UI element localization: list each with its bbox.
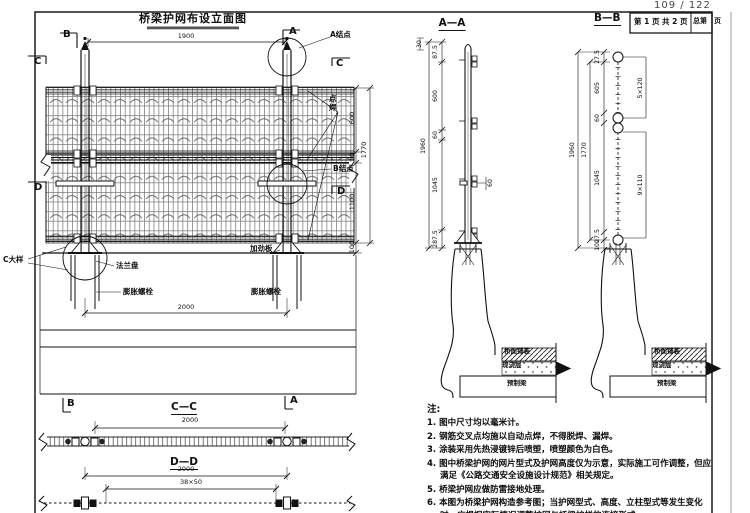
dim-bb-1770: 1770 xyxy=(582,142,588,158)
dim-dd-span: 2000 xyxy=(178,466,195,473)
marker-a-top: A xyxy=(289,27,297,37)
label-stiffener: 加劲板 xyxy=(250,245,273,253)
drawing-title: 桥梁护网布设立面图 xyxy=(139,13,247,24)
marker-d-left: D xyxy=(34,183,42,193)
dim-bb-27-5-top: 27.5 xyxy=(595,50,601,64)
dim-aa-total: 1960 xyxy=(421,138,427,154)
label-precast-beam-bb: 预制梁 xyxy=(657,380,677,387)
section-aa xyxy=(417,38,570,403)
section-cc-title: C—C xyxy=(171,402,197,415)
dim-dd-spacing: 38×50 xyxy=(180,479,202,486)
label-cast-layer-aa: 现浇层 xyxy=(502,362,522,369)
marker-a-cc: A xyxy=(290,396,298,406)
dim-bb-spacing-top: 5×120 xyxy=(638,78,644,99)
section-bb-title: B—B xyxy=(594,13,621,26)
dim-bb-605: 605 xyxy=(595,82,601,94)
label-anchor-bolt-right: 膨胀螺栓 xyxy=(251,288,281,296)
section-aa-title: A—A xyxy=(439,18,466,31)
dim-aa-87-5: 87.5 xyxy=(433,45,439,59)
note-item-5: 5. 桥梁护网应做防雷接地处理。 xyxy=(427,484,714,497)
label-node-a: A结点 xyxy=(330,31,351,39)
dim-right-total: 1770 xyxy=(361,142,368,159)
dim-right-100: 100 xyxy=(349,241,356,253)
dim-aa-1045: 1045 xyxy=(433,177,439,193)
note-item-4: 4. 图中桥梁护网的网片型式及护网高度仅为示意，实际施工可作调整，但应满足《公路… xyxy=(427,458,714,483)
label-anchor-bolt-left: 膨胀螺栓 xyxy=(123,288,153,296)
dim-aa-30: 30 xyxy=(417,40,423,48)
notes-block: 注: 1. 图中尺寸均以毫米计。 2. 钢筋交叉点均施以自动点焊，不得脱焊、漏焊… xyxy=(427,401,714,513)
dim-bb-60: 60 xyxy=(595,114,601,122)
dim-aa-offset-60: 60 xyxy=(488,179,494,187)
page-counter: 109 / 122 xyxy=(654,1,711,11)
dim-bb-1960: 1960 xyxy=(570,142,576,158)
label-flange: 法兰盘 xyxy=(116,262,139,270)
total-sheet-label: 总第 页 xyxy=(693,18,721,25)
dim-bb-100: 100 xyxy=(595,239,601,251)
section-dd xyxy=(39,467,355,511)
dim-aa-60: 60 xyxy=(433,131,439,139)
label-cast-layer-bb: 现浇层 xyxy=(652,362,672,369)
elevation-net xyxy=(40,87,360,394)
dim-anchor-span: 2000 xyxy=(178,304,195,311)
cad-sheet: 109 / 122 桥梁护网布设立面图 B—B 第 1 页 共 2 页 总第 页… xyxy=(0,0,750,513)
label-precast-beam-aa: 预制梁 xyxy=(507,380,527,387)
dim-aa-600: 600 xyxy=(433,90,439,102)
dim-right-600: 600 xyxy=(349,112,356,124)
dim-top-span: 1900 xyxy=(178,33,195,40)
label-node-b: B结点 xyxy=(333,165,354,173)
dim-bb-spacing-bottom: 9×110 xyxy=(638,175,644,196)
marker-c-right: C xyxy=(336,59,343,69)
label-pavement-bb: 桥面铺装 xyxy=(654,348,680,355)
section-bb xyxy=(575,49,720,403)
label-spot-weld: 点焊 xyxy=(329,95,338,112)
note-item-2: 2. 钢筋交叉点均施以自动点焊，不得脱焊、漏焊。 xyxy=(427,431,714,444)
dim-bb-1045: 1045 xyxy=(595,170,601,186)
note-item-3: 3. 涂装采用先热浸镀锌后喷塑，喷塑颜色为白色。 xyxy=(427,444,714,457)
dim-right-1100: 1100 xyxy=(349,194,356,211)
marker-b-cc: B xyxy=(67,399,75,409)
label-detail-c: C大样 xyxy=(3,256,24,264)
marker-b-top: B xyxy=(63,30,71,40)
label-pavement-aa: 桥面铺装 xyxy=(504,348,530,355)
note-item-1: 1. 图中尺寸均以毫米计。 xyxy=(427,417,714,430)
dim-right-10: 10 xyxy=(349,153,356,161)
notes-heading: 注: xyxy=(427,401,714,415)
dim-aa-287-5: 287.5 xyxy=(433,230,439,248)
note-item-6: 6. 本图为桥梁护网构造参考图；当护网型式、高度、立柱型式等发生变化时，应根据实… xyxy=(427,497,714,513)
marker-d-right: D xyxy=(337,187,345,197)
dim-cc-span: 2000 xyxy=(182,417,199,424)
marker-c-left: C xyxy=(34,57,41,67)
sheet-number-label: 第 1 页 共 2 页 xyxy=(634,18,688,26)
